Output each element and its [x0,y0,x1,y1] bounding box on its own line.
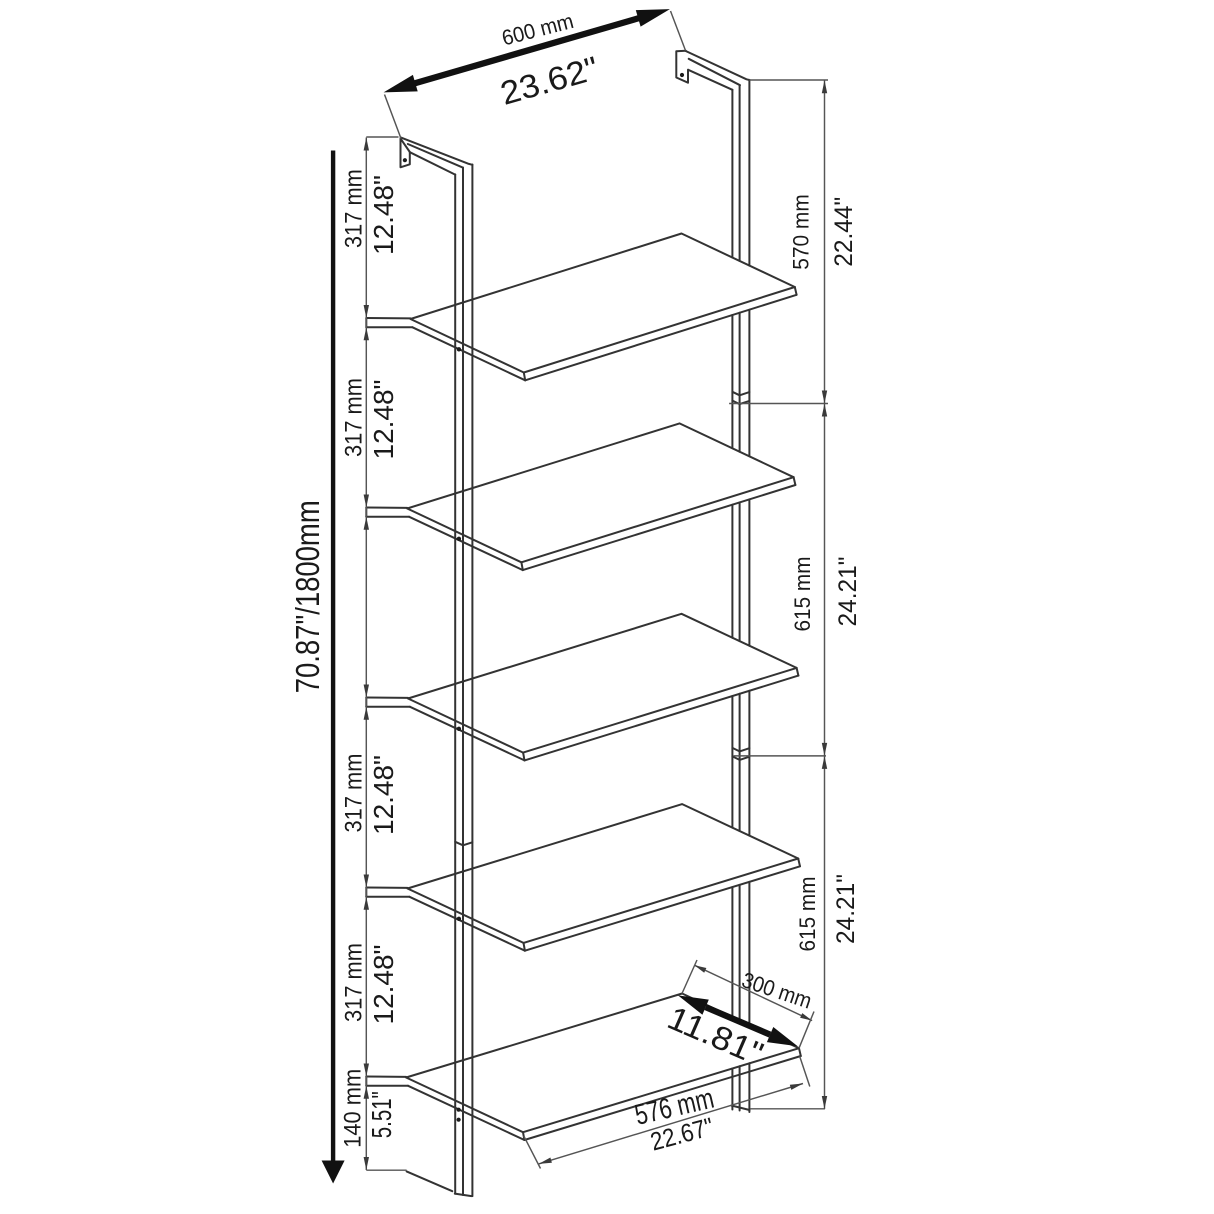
svg-text:317 mm: 317 mm [341,169,368,248]
svg-text:5.51": 5.51" [366,1091,397,1138]
svg-text:22.44": 22.44" [830,197,858,267]
svg-text:70.87"/1800mm: 70.87"/1800mm [289,500,326,693]
svg-text:12.48": 12.48" [368,755,399,835]
svg-text:12.48": 12.48" [368,175,399,255]
svg-text:570 mm: 570 mm [789,194,814,270]
svg-text:24.21": 24.21" [832,874,860,944]
svg-text:12.48": 12.48" [368,380,399,460]
svg-text:317 mm: 317 mm [341,378,368,457]
svg-text:615 mm: 615 mm [790,557,815,632]
svg-text:12.48": 12.48" [368,945,399,1025]
svg-text:615 mm: 615 mm [795,877,820,952]
svg-text:317 mm: 317 mm [341,943,368,1022]
svg-text:140 mm: 140 mm [340,1069,367,1148]
svg-text:317 mm: 317 mm [341,754,368,833]
svg-text:24.21": 24.21" [834,557,862,627]
